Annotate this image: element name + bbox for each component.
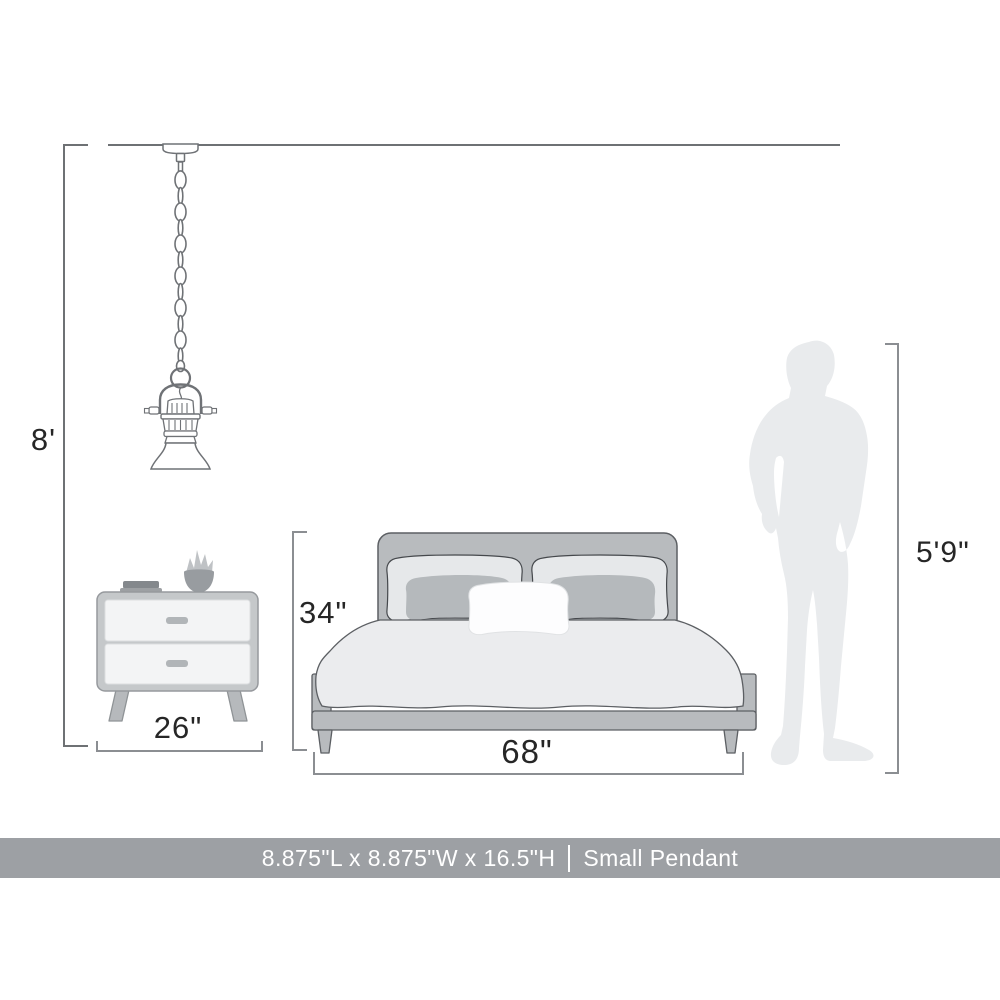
banner-separator (568, 845, 570, 872)
plant-pot (184, 569, 214, 592)
product-info-banner: 8.875"L x 8.875"W x 16.5"H Small Pendant (0, 838, 1000, 878)
person-silhouette (743, 336, 883, 768)
product-name-text: Small Pendant (583, 845, 738, 872)
ceiling-height-label: 8' (18, 424, 56, 455)
bed-white-pillow (469, 582, 569, 635)
pendant-chain (175, 171, 186, 372)
ceiling-height-dimension-bracket (63, 144, 88, 747)
pendant-shade (151, 443, 210, 469)
nightstand-illustration (90, 548, 270, 726)
bed-duvet (316, 620, 744, 708)
bed-width-label: 68" (486, 735, 568, 768)
pendant-light-illustration (140, 140, 225, 475)
bed-base-rail (312, 711, 756, 730)
scale-diagram: 8' (0, 0, 1000, 1000)
person-height-label: 5'9" (916, 538, 996, 568)
person-height-dimension-bracket (885, 343, 899, 774)
book-decor (120, 581, 162, 593)
pendant-canopy (163, 144, 198, 171)
bed-height-label: 34" (299, 597, 379, 628)
bed-illustration (305, 525, 760, 760)
pendant-fitter (145, 369, 217, 444)
product-dimensions-text: 8.875"L x 8.875"W x 16.5"H (262, 845, 556, 872)
bed-height-dimension-bracket (292, 531, 307, 751)
nightstand-width-label: 26" (137, 712, 219, 743)
